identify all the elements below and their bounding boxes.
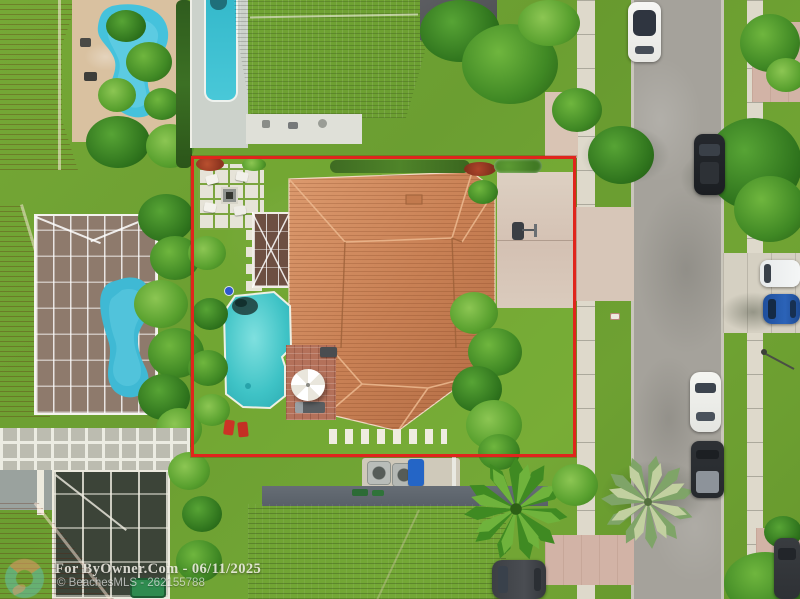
aerial-photo: For ByOwner.Com - 06/11/2025 © BeachesML…	[0, 0, 800, 599]
watermark-brand-date: For ByOwner.Com - 06/11/2025	[55, 561, 261, 578]
car-glass	[633, 10, 656, 36]
roof-vent	[352, 489, 368, 496]
palm-tree-street	[598, 452, 698, 552]
palm-cluster	[86, 116, 150, 168]
car-glass	[778, 548, 796, 560]
palm-tree	[144, 88, 180, 120]
patio-furniture	[262, 120, 270, 128]
car-rear-glass	[635, 46, 654, 54]
ac-unit	[368, 462, 390, 484]
patio-furniture	[80, 38, 91, 47]
bush	[168, 452, 210, 490]
byowner-swirl-logo-icon	[3, 557, 46, 599]
palm-tree	[126, 42, 172, 82]
suv-glass	[699, 144, 720, 156]
tree	[588, 126, 654, 184]
dark-car-bottomright	[774, 538, 800, 599]
van-windshield	[764, 264, 771, 283]
sedan-rear-glass	[696, 412, 715, 421]
suv-windshield	[498, 566, 508, 593]
palm-tree	[98, 78, 136, 112]
white-minivan	[760, 260, 800, 287]
palm-strip	[134, 280, 188, 328]
patio-furniture	[288, 122, 298, 129]
suv-roof	[700, 162, 719, 184]
bush	[552, 464, 598, 506]
pickup-bed-cover	[696, 471, 719, 493]
pickup-windshield	[696, 450, 719, 459]
roof-vent	[372, 490, 384, 496]
patio-furniture	[84, 72, 97, 81]
neighbor-patio	[246, 114, 362, 144]
mailbox	[610, 313, 620, 320]
suv-rear-glass	[534, 568, 541, 591]
roof-ridge-highlight	[58, 0, 61, 170]
car-windshield	[768, 299, 776, 319]
dark-suv	[694, 134, 725, 195]
watermark-mls-id: © BeachesMLS - 262155788	[57, 577, 205, 589]
tree	[552, 88, 602, 132]
palm-tree	[106, 10, 146, 42]
tree-large	[734, 176, 800, 242]
tree	[518, 0, 580, 46]
sedan-windshield	[695, 383, 716, 393]
neighbor-roof-topleft	[0, 0, 78, 170]
recycle-bin	[408, 459, 424, 486]
driveway-suv	[492, 560, 546, 599]
patio-furniture	[318, 119, 327, 128]
streetlight-head	[761, 349, 767, 355]
car-rear-glass	[790, 300, 796, 318]
white-car-top	[628, 2, 661, 62]
driveway-apron	[573, 207, 634, 301]
tree	[766, 58, 800, 92]
dark-pickup	[691, 441, 724, 498]
property-boundary-outline	[191, 156, 576, 457]
blue-car	[763, 294, 800, 324]
bush	[182, 496, 222, 532]
white-sedan	[690, 372, 721, 432]
palm-strip	[138, 194, 194, 242]
palm-tree-large	[458, 450, 574, 568]
lap-pool	[204, 0, 238, 102]
